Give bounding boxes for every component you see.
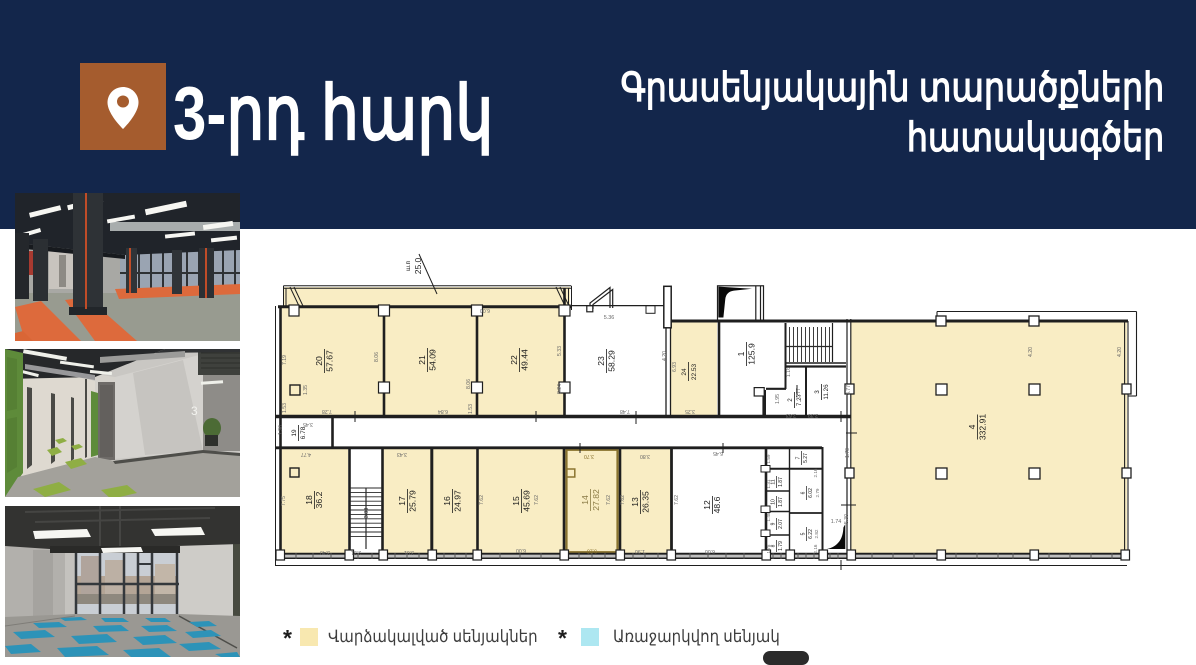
svg-text:6.93: 6.93 <box>672 362 678 372</box>
svg-text:1.31: 1.31 <box>766 479 771 488</box>
svg-text:16: 16 <box>442 496 452 506</box>
svg-text:1.45: 1.45 <box>766 512 771 521</box>
svg-text:1: 1 <box>736 351 746 356</box>
svg-text:1.59: 1.59 <box>766 454 771 463</box>
svg-text:4.20: 4.20 <box>662 351 668 361</box>
svg-text:3.77: 3.77 <box>846 385 852 395</box>
svg-text:6.00: 6.00 <box>480 307 490 313</box>
svg-text:18: 18 <box>304 495 314 505</box>
svg-text:24: 24 <box>681 368 688 376</box>
svg-text:3.43: 3.43 <box>397 451 407 457</box>
svg-text:49.44: 49.44 <box>519 349 529 371</box>
svg-text:48.6: 48.6 <box>712 496 722 513</box>
svg-text:2: 2 <box>787 398 794 402</box>
svg-text:125.9: 125.9 <box>746 343 756 365</box>
svg-text:1.78: 1.78 <box>766 544 771 553</box>
svg-text:6.78: 6.78 <box>300 426 307 439</box>
svg-text:2.07: 2.07 <box>778 519 784 529</box>
svg-text:8.06: 8.06 <box>466 379 472 389</box>
svg-text:3.83: 3.83 <box>364 508 370 519</box>
svg-text:1.16: 1.16 <box>786 367 792 377</box>
svg-text:8.06: 8.06 <box>374 352 380 362</box>
svg-text:332.91: 332.91 <box>977 414 987 441</box>
svg-text:3: 3 <box>191 404 198 418</box>
svg-text:7.75: 7.75 <box>281 496 287 506</box>
svg-text:2.16: 2.16 <box>813 468 818 477</box>
svg-text:6.00: 6.00 <box>516 547 526 553</box>
svg-text:4.20: 4.20 <box>1117 347 1123 357</box>
svg-text:12: 12 <box>702 500 712 510</box>
svg-text:11.26: 11.26 <box>823 384 830 400</box>
svg-text:57.67: 57.67 <box>324 350 334 372</box>
svg-text:7.62: 7.62 <box>479 495 485 505</box>
svg-text:15: 15 <box>511 496 521 506</box>
svg-text:1.53: 1.53 <box>468 404 474 414</box>
svg-text:4.77: 4.77 <box>301 451 311 457</box>
svg-text:ш.п: ш.п <box>406 261 412 271</box>
svg-text:6: 6 <box>801 491 807 494</box>
svg-text:7.62: 7.62 <box>674 495 680 505</box>
svg-text:58.29: 58.29 <box>606 350 616 372</box>
svg-text:1.90: 1.90 <box>635 548 645 554</box>
svg-text:1.79: 1.79 <box>778 541 784 551</box>
svg-text:1.70: 1.70 <box>845 448 851 458</box>
svg-text:13: 13 <box>630 497 640 507</box>
svg-text:7.62: 7.62 <box>620 495 626 505</box>
svg-text:1.53: 1.53 <box>282 403 288 413</box>
svg-text:5: 5 <box>801 532 807 535</box>
svg-text:17: 17 <box>397 496 407 506</box>
svg-text:22.53: 22.53 <box>691 363 698 380</box>
svg-text:6.00: 6.00 <box>705 548 715 554</box>
svg-text:1.95: 1.95 <box>775 394 781 404</box>
svg-text:21: 21 <box>417 355 427 365</box>
svg-text:7.48: 7.48 <box>620 408 630 414</box>
svg-text:4: 4 <box>967 424 977 429</box>
svg-text:36.2: 36.2 <box>314 491 324 508</box>
svg-text:14: 14 <box>580 495 590 505</box>
svg-text:2.79: 2.79 <box>815 488 820 497</box>
svg-text:25.79: 25.79 <box>407 490 417 512</box>
svg-text:10: 10 <box>771 499 777 505</box>
svg-text:2.82: 2.82 <box>814 529 819 538</box>
svg-text:7.28: 7.28 <box>322 408 332 414</box>
svg-text:5.33: 5.33 <box>557 346 563 356</box>
svg-text:19: 19 <box>291 429 298 437</box>
svg-text:5.27: 5.27 <box>803 453 809 463</box>
svg-text:2.31: 2.31 <box>351 549 361 555</box>
svg-text:3.01: 3.01 <box>404 549 414 555</box>
svg-text:8.24: 8.24 <box>557 384 563 394</box>
svg-text:7.62: 7.62 <box>534 495 540 505</box>
svg-text:7.62: 7.62 <box>606 495 612 505</box>
svg-text:2.39: 2.39 <box>808 412 818 418</box>
svg-text:8: 8 <box>771 544 777 547</box>
svg-text:1.35: 1.35 <box>303 385 309 395</box>
svg-text:3.80: 3.80 <box>640 453 650 459</box>
svg-text:1.96: 1.96 <box>278 425 284 435</box>
svg-text:54.09: 54.09 <box>427 349 437 371</box>
svg-text:3: 3 <box>814 390 821 394</box>
svg-text:9: 9 <box>771 522 777 525</box>
svg-text:23: 23 <box>596 356 606 366</box>
svg-text:26.35: 26.35 <box>640 491 650 513</box>
svg-text:3.70: 3.70 <box>584 453 594 459</box>
svg-text:6.02: 6.02 <box>808 488 814 498</box>
svg-text:27.82: 27.82 <box>591 489 601 511</box>
svg-text:11: 11 <box>771 479 777 484</box>
svg-text:1.87: 1.87 <box>778 477 784 487</box>
svg-text:7.19: 7.19 <box>282 355 288 365</box>
svg-text:1.74: 1.74 <box>831 519 842 525</box>
svg-text:3.25: 3.25 <box>685 408 695 414</box>
svg-text:5.36: 5.36 <box>604 315 615 321</box>
svg-text:6.45: 6.45 <box>713 450 723 456</box>
svg-text:6.84: 6.84 <box>438 408 448 414</box>
svg-text:25.0: 25.0 <box>413 257 423 274</box>
svg-text:3.77: 3.77 <box>796 388 802 398</box>
svg-text:2.63: 2.63 <box>786 412 796 418</box>
svg-text:3.28: 3.28 <box>587 548 597 554</box>
svg-text:45.69: 45.69 <box>521 490 531 512</box>
svg-text:20: 20 <box>314 356 324 366</box>
svg-text:5.30: 5.30 <box>844 514 850 524</box>
svg-text:24.97: 24.97 <box>452 490 462 512</box>
svg-text:4.20: 4.20 <box>1028 347 1034 357</box>
svg-text:2.16: 2.16 <box>813 544 818 553</box>
svg-text:3.45: 3.45 <box>303 421 313 427</box>
svg-text:3.40: 3.40 <box>320 549 330 555</box>
svg-text:22: 22 <box>509 355 519 365</box>
svg-text:1.87: 1.87 <box>778 497 784 507</box>
svg-text:7: 7 <box>796 456 802 459</box>
